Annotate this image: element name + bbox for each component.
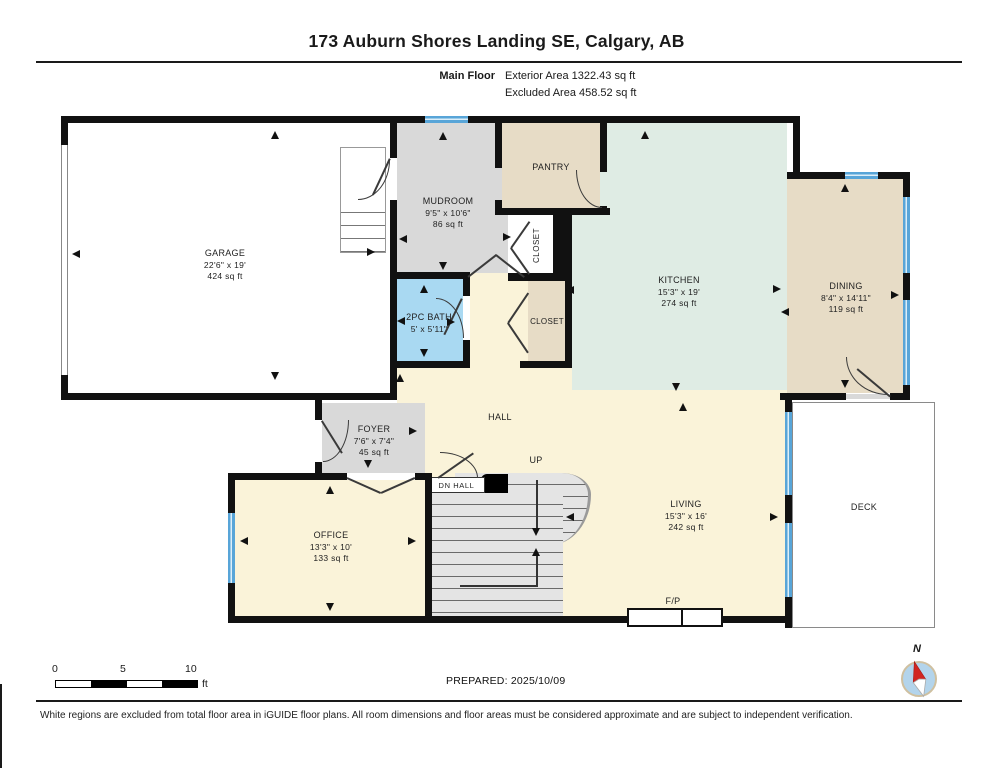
wall (390, 116, 397, 158)
exterior-area: Exterior Area 1322.43 sq ft (505, 70, 635, 82)
stairs-up-connector (460, 585, 538, 587)
wall (228, 473, 235, 513)
stairs-up-label: UP (476, 455, 596, 467)
dimension-arrow (439, 262, 447, 270)
dimension-arrow (396, 374, 404, 382)
scale-tick-5: 5 (120, 663, 126, 675)
disclaimer-text: White regions are excluded from total fl… (40, 710, 960, 721)
dimension-arrow (773, 285, 781, 293)
window (903, 197, 910, 273)
wall (61, 116, 68, 145)
wall (390, 272, 470, 279)
wall (61, 375, 68, 400)
scale-bar (55, 680, 198, 688)
dimension-arrow (891, 291, 899, 299)
scale-tick-0: 0 (52, 663, 58, 675)
stairs-down-arrow-icon (532, 528, 540, 536)
room-label-kitchen: KITCHEN 15'3" x 19' 274 sq ft (619, 275, 739, 309)
wall (785, 495, 792, 523)
room-label-hall: HALL (440, 412, 560, 424)
window (845, 172, 878, 179)
garage-door (61, 145, 68, 375)
dimension-arrow (364, 460, 372, 468)
wall (61, 116, 425, 123)
floor-plan-page: 173 Auburn Shores Landing SE, Calgary, A… (0, 0, 993, 768)
wall (903, 385, 910, 400)
room-label-pantry: PANTRY (491, 162, 611, 174)
wall (495, 208, 610, 215)
dimension-arrow (439, 132, 447, 140)
wall (390, 200, 397, 400)
dimension-arrow (566, 513, 574, 521)
wall (228, 473, 347, 480)
room-label-closet-upper: CLOSET (532, 219, 552, 271)
stairs-down-run (432, 493, 563, 620)
dimension-arrow (447, 318, 455, 326)
compass-svg (895, 654, 943, 702)
wall (315, 400, 322, 420)
dimension-arrow (841, 184, 849, 192)
dimension-arrow (367, 248, 375, 256)
garage-stairs-treads (341, 200, 385, 252)
wall (903, 172, 910, 197)
room-hall-strip-floor (397, 368, 470, 403)
dimension-arrow (672, 383, 680, 391)
prepared-date: PREPARED: 2025/10/09 (446, 675, 565, 687)
room-label-garage: GARAGE 22'6" x 19' 424 sq ft (165, 248, 285, 282)
page-edge-line (0, 684, 2, 768)
dimension-arrow (420, 285, 428, 293)
compass-icon (895, 654, 943, 702)
wall (61, 393, 397, 400)
window (785, 412, 792, 495)
room-label-bath: 2PC BATH 5' x 5'11" (369, 312, 489, 335)
wall (425, 473, 432, 616)
stairs-direction-line (536, 480, 538, 528)
dimension-arrow (770, 513, 778, 521)
scale-segment (127, 681, 162, 687)
dimension-arrow (679, 403, 687, 411)
wall (785, 597, 792, 628)
dimension-arrow (271, 131, 279, 139)
dimension-arrow (397, 317, 405, 325)
dimension-arrow (240, 537, 248, 545)
excluded-area: Excluded Area 458.52 sq ft (505, 87, 636, 99)
dimension-arrow (399, 235, 407, 243)
bifold-door-line (510, 221, 530, 248)
scale-segment (56, 681, 91, 687)
fireplace-box (627, 608, 723, 627)
wall (553, 215, 572, 277)
window (228, 513, 235, 583)
window (785, 523, 792, 597)
dimension-arrow (781, 308, 789, 316)
wall (468, 116, 800, 123)
page-title: 173 Auburn Shores Landing SE, Calgary, A… (0, 31, 993, 52)
header-divider (36, 61, 962, 63)
room-label-mudroom: MUDROOM 9'5" x 10'6" 86 sq ft (388, 196, 508, 230)
bifold-door-line (510, 247, 530, 274)
scale-segment (162, 681, 197, 687)
wall (315, 462, 322, 473)
wall (793, 116, 800, 179)
dimension-arrow (409, 427, 417, 435)
dn-hall-label: DN HALL (428, 477, 485, 493)
footer-divider (36, 700, 962, 702)
wall (390, 361, 470, 368)
stairs-up-arrow-icon (532, 548, 540, 556)
scale-unit: ft (202, 678, 208, 690)
wall (228, 583, 235, 623)
dimension-arrow (271, 372, 279, 380)
deck-outline (792, 402, 935, 628)
room-label-closet-lower: CLOSET (524, 317, 570, 327)
dimension-arrow (408, 537, 416, 545)
scale-tick-10: 10 (185, 663, 197, 675)
dimension-arrow (841, 380, 849, 388)
wall (463, 340, 470, 368)
room-label-dining: DINING 8'4" x 14'11" 119 sq ft (786, 281, 906, 315)
dimension-arrow (566, 286, 574, 294)
stairs-up-line (536, 556, 538, 586)
floor-label: Main Floor (370, 70, 495, 82)
room-label-deck: DECK (804, 502, 924, 514)
dimension-arrow (326, 486, 334, 494)
wall (785, 393, 792, 412)
dimension-arrow (72, 250, 80, 258)
dimension-arrow (503, 233, 511, 241)
dimension-arrow (326, 603, 334, 611)
window (425, 116, 468, 123)
room-label-living: LIVING 15'3" x 16' 242 sq ft (626, 499, 746, 533)
room-label-office: OFFICE 13'3" x 10' 133 sq ft (271, 530, 391, 564)
fireplace-divider (681, 610, 683, 625)
dimension-arrow (420, 349, 428, 357)
wall (495, 116, 502, 168)
scale-segment (91, 681, 126, 687)
dimension-arrow (641, 131, 649, 139)
fireplace-label: F/P (613, 596, 733, 608)
